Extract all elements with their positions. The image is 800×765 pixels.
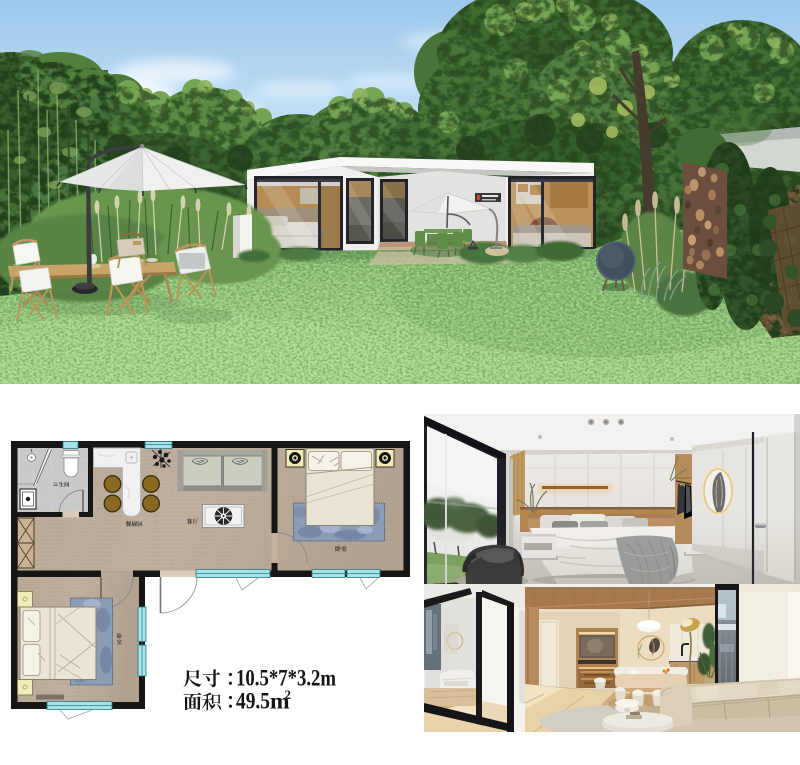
- svg-text:2: 2: [285, 687, 292, 702]
- svg-text:49.5: 49.5: [236, 689, 270, 715]
